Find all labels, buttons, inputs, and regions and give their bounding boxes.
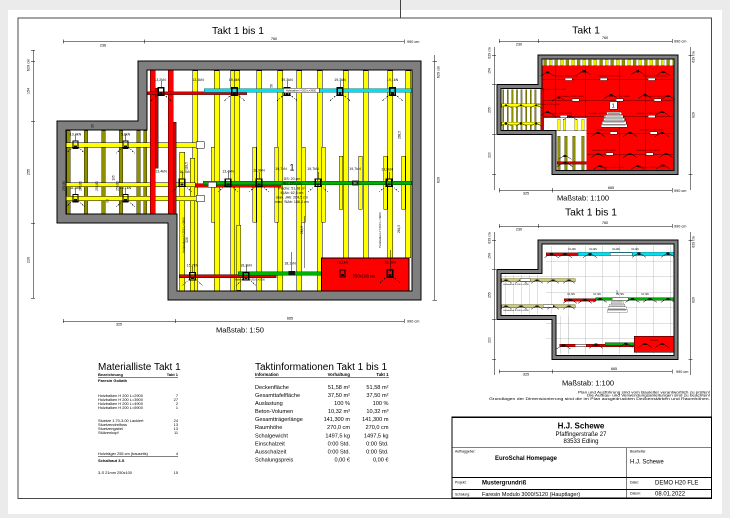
svg-text:max. JAb: 264,5 cm: max. JAb: 264,5 cm <box>276 195 308 199</box>
svg-text:Maßstab: 1:100: Maßstab: 1:100 <box>557 194 609 203</box>
svg-text:18,3kN: 18,3kN <box>240 264 252 268</box>
svg-text:1497,5 kg: 1497,5 kg <box>325 433 350 439</box>
svg-text:19,7kN: 19,7kN <box>307 167 319 171</box>
svg-text:Faresin Goliath: Faresin Goliath <box>98 378 128 383</box>
svg-text:Beton-Volumen: Beton-Volumen <box>255 409 293 415</box>
svg-text:141,300 m: 141,300 m <box>324 417 351 423</box>
svg-text:990 cm: 990 cm <box>674 40 686 44</box>
svg-text:Holzbalken H 200 L=3900: Holzbalken H 200 L=3900 <box>542 89 566 91</box>
svg-text:Pfaffingerstraße 27: Pfaffingerstraße 27 <box>556 432 608 438</box>
svg-text:255: 255 <box>488 292 492 298</box>
svg-text:Schalungspreis: Schalungspreis <box>255 458 293 464</box>
svg-text:Faresin Modulo 3000/S120 (Haup: Faresin Modulo 3000/S120 (Hauptlager) <box>482 492 580 498</box>
svg-text:19,3kN: 19,3kN <box>281 78 293 82</box>
svg-text:19,7kN: 19,7kN <box>641 293 649 296</box>
svg-text:90: 90 <box>91 124 95 128</box>
svg-text:154: 154 <box>488 68 492 74</box>
svg-text:Holzbalken H 200 L=3900: Holzbalken H 200 L=3900 <box>638 167 662 169</box>
svg-text:264,5: 264,5 <box>300 226 304 234</box>
svg-text:19,4kN: 19,4kN <box>229 78 241 82</box>
svg-text:51,58 m²: 51,58 m² <box>366 385 388 391</box>
svg-text:Auftraggeber:: Auftraggeber: <box>455 450 476 454</box>
svg-text:10,32 m³: 10,32 m³ <box>366 409 388 415</box>
svg-text:760: 760 <box>602 221 608 225</box>
svg-text:100 %: 100 % <box>373 401 389 407</box>
svg-text:08.01.2022: 08.01.2022 <box>655 492 686 498</box>
svg-text:Holzbalken H 200 L=3900: Holzbalken H 200 L=3900 <box>548 113 572 115</box>
svg-text:141,300 m: 141,300 m <box>362 417 389 423</box>
svg-text:19,2kN: 19,2kN <box>381 168 393 172</box>
svg-text:16,9kN: 16,9kN <box>253 169 265 173</box>
svg-text:19,4kN: 19,4kN <box>589 248 597 251</box>
svg-text:3-S 21mm 250x100: 3-S 21mm 250x100 <box>98 470 133 475</box>
svg-text:220: 220 <box>185 237 189 243</box>
svg-text:Ausschalzeit: Ausschalzeit <box>255 449 287 455</box>
svg-text:Grundlagen der Dimensionierung: Grundlagen der Dimensionierung sind die … <box>489 397 710 401</box>
svg-text:255: 255 <box>488 107 492 113</box>
svg-text:629 cm: 629 cm <box>488 47 492 58</box>
svg-text:18,1kN: 18,1kN <box>337 261 349 265</box>
svg-text:990 cm: 990 cm <box>674 189 686 193</box>
svg-text:154: 154 <box>27 88 31 94</box>
svg-text:19,3kN: 19,3kN <box>334 78 346 82</box>
svg-text:DEMO H20 FLE: DEMO H20 FLE <box>655 481 698 487</box>
svg-text:220: 220 <box>488 152 492 158</box>
svg-text:10,32 m³: 10,32 m³ <box>328 409 350 415</box>
svg-text:Gesamtträgerlänge: Gesamtträgerlänge <box>255 417 303 423</box>
svg-text:Fläche: 51,58 m²: Fläche: 51,58 m² <box>279 186 307 190</box>
svg-text:37,50 m²: 37,50 m² <box>328 393 350 399</box>
svg-text:665: 665 <box>611 367 617 371</box>
svg-text:H.J. Schewe: H.J. Schewe <box>558 422 605 431</box>
svg-text:629: 629 <box>692 297 696 303</box>
svg-text:Schalgewicht: Schalgewicht <box>255 433 288 439</box>
svg-text:Information: Information <box>255 372 279 377</box>
svg-text:665: 665 <box>608 186 614 190</box>
svg-text:Holzbalken H 200 L=3900: Holzbalken H 200 L=3900 <box>644 96 668 98</box>
svg-text:Holzbalken H 200 L=3900: Holzbalken H 200 L=3900 <box>636 150 660 152</box>
svg-text:255: 255 <box>27 169 31 175</box>
svg-text:Vorhaltung: Vorhaltung <box>328 372 351 377</box>
svg-text:Holzbalken H 200 L=3900: Holzbalken H 200 L=3900 <box>286 89 316 93</box>
svg-text:Takt 1 bis 1: Takt 1 bis 1 <box>212 26 264 37</box>
svg-text:Maßstab: 1:100: Maßstab: 1:100 <box>562 379 614 388</box>
svg-text:13,2kN: 13,2kN <box>154 78 166 82</box>
svg-text:Holzbalken H 200 L=3900: Holzbalken H 200 L=3900 <box>600 167 624 169</box>
svg-text:Holzbalken H 200 L=3900: Holzbalken H 200 L=3900 <box>636 113 660 115</box>
svg-text:990 cm: 990 cm <box>407 40 419 44</box>
svg-text:Deckenfläche: Deckenfläche <box>255 385 289 391</box>
svg-text:Holzbalken H 200 L=3900: Holzbalken H 200 L=3900 <box>598 76 622 78</box>
svg-text:629 cm: 629 cm <box>437 66 441 78</box>
svg-text:Holzbalken H 200 L=2900: Holzbalken H 200 L=2900 <box>235 277 265 281</box>
svg-text:Holzbalken H 200 L=3900: Holzbalken H 200 L=3900 <box>643 76 667 78</box>
svg-text:1: 1 <box>176 405 178 410</box>
svg-text:Holzträger 255 cm (bauseits): Holzträger 255 cm (bauseits) <box>98 451 149 456</box>
svg-text:760: 760 <box>271 37 277 41</box>
svg-text:Gesamttafelfläche: Gesamttafelfläche <box>255 393 300 399</box>
svg-text:230: 230 <box>516 43 522 47</box>
svg-text:220: 220 <box>488 337 492 343</box>
svg-text:19,4kN: 19,4kN <box>631 248 639 251</box>
svg-text:255,80: 255,80 <box>116 181 120 191</box>
svg-text:19,4kN: 19,4kN <box>568 248 576 251</box>
svg-text:629: 629 <box>437 177 441 183</box>
svg-text:Holzbalken H 200 L=3900: Holzbalken H 200 L=3900 <box>554 76 578 78</box>
svg-text:Holzbalken H 200 L=5900: Holzbalken H 200 L=5900 <box>98 405 144 410</box>
svg-text:0,00 €: 0,00 € <box>373 458 389 464</box>
svg-text:220: 220 <box>27 257 31 263</box>
svg-text:19,7kN: 19,7kN <box>349 167 361 171</box>
svg-text:37,50 m²: 37,50 m² <box>366 393 388 399</box>
svg-text:Holzbalken H 200 L=3900: Holzbalken H 200 L=3900 <box>536 104 560 106</box>
svg-text:Holzbalken H 200 L=3900: Holzbalken H 200 L=3900 <box>596 129 620 131</box>
svg-text:250x108: 250x108 <box>650 340 659 342</box>
svg-text:Schalung:: Schalung: <box>455 493 470 497</box>
svg-text:Datum:: Datum: <box>630 492 641 496</box>
svg-text:Holzbalken H 200 L=3900: Holzbalken H 200 L=3900 <box>182 217 186 253</box>
svg-text:Datei:: Datei: <box>630 481 639 485</box>
svg-text:Bezeichnung: Bezeichnung <box>98 372 123 377</box>
svg-text:154: 154 <box>488 253 492 259</box>
svg-text:990 cm: 990 cm <box>407 320 419 324</box>
svg-text:Takt 1: Takt 1 <box>167 372 179 377</box>
svg-text:15,7kN: 15,7kN <box>187 264 199 268</box>
svg-text:19,7kN: 19,7kN <box>275 167 287 171</box>
svg-text:255,80: 255,80 <box>95 181 99 191</box>
svg-text:Takt 1: Takt 1 <box>572 26 600 37</box>
svg-text:990 cm: 990 cm <box>674 225 686 229</box>
svg-text:19,1kN: 19,1kN <box>387 78 399 82</box>
svg-text:990 cm: 990 cm <box>676 370 688 374</box>
svg-text:118,5: 118,5 <box>185 162 189 170</box>
svg-text:100 %: 100 % <box>334 401 350 407</box>
svg-text:0:00 Std.: 0:00 Std. <box>328 449 351 455</box>
svg-text:max. StAb: 158,3 cm: max. StAb: 158,3 cm <box>275 200 308 204</box>
svg-text:Raumhöhe: Raumhöhe <box>255 425 282 431</box>
svg-text:15: 15 <box>174 470 178 475</box>
svg-text:629 cm: 629 cm <box>692 51 696 62</box>
svg-text:0,00 €: 0,00 € <box>334 458 350 464</box>
svg-text:255,80: 255,80 <box>62 181 66 191</box>
svg-text:Projekt:: Projekt: <box>455 481 467 485</box>
svg-text:0:00 Std.: 0:00 Std. <box>366 449 389 455</box>
svg-text:Auslastung: Auslastung <box>255 401 283 407</box>
svg-text:13,4kN: 13,4kN <box>155 170 167 174</box>
svg-text:13,5kN: 13,5kN <box>192 78 204 82</box>
svg-text:629: 629 <box>692 112 696 118</box>
svg-text:11: 11 <box>174 430 178 435</box>
svg-text:0:00 Std.: 0:00 Std. <box>328 441 351 447</box>
svg-text:230: 230 <box>516 228 522 232</box>
svg-text:1: 1 <box>289 163 294 173</box>
svg-text:Holzbalken H 200 L=3900: Holzbalken H 200 L=3900 <box>560 96 584 98</box>
svg-text:Mustergrundriß: Mustergrundriß <box>482 481 527 487</box>
svg-text:83533 Edling: 83533 Edling <box>563 439 598 445</box>
svg-text:1: 1 <box>612 104 615 110</box>
svg-text:90: 90 <box>106 199 110 203</box>
svg-text:629 cm: 629 cm <box>488 232 492 243</box>
svg-text:195: 195 <box>112 175 116 181</box>
svg-text:1497,5 kg: 1497,5 kg <box>364 433 389 439</box>
svg-text:325: 325 <box>116 323 122 327</box>
svg-text:325: 325 <box>523 191 529 195</box>
svg-text:268,5: 268,5 <box>398 131 402 139</box>
svg-text:13,4kN: 13,4kN <box>222 170 234 174</box>
svg-text:250x108 cm: 250x108 cm <box>353 274 376 279</box>
svg-text:Holzbalken H 200 L=3900: Holzbalken H 200 L=3900 <box>606 96 630 98</box>
svg-text:665: 665 <box>287 317 293 321</box>
svg-text:0:00 Std.: 0:00 Std. <box>366 441 389 447</box>
svg-text:Stützenkopf: Stützenkopf <box>98 430 119 435</box>
svg-text:H.J. Schewe: H.J. Schewe <box>630 460 664 466</box>
svg-text:EuroSchal Homepage: EuroSchal Homepage <box>495 456 558 462</box>
svg-text:264,5: 264,5 <box>397 225 401 233</box>
svg-text:Einschalzeit: Einschalzeit <box>255 441 285 447</box>
svg-text:325: 325 <box>523 373 529 377</box>
svg-text:270,0 cm: 270,0 cm <box>327 425 350 431</box>
svg-text:13,1kN: 13,1kN <box>120 186 132 190</box>
svg-text:lQAb: 62,5 cm: lQAb: 62,5 cm <box>281 191 304 195</box>
svg-text:Schalhaut 3-S: Schalhaut 3-S <box>98 458 125 463</box>
svg-text:Holzbalken H 200 L=3900: Holzbalken H 200 L=3900 <box>592 150 616 152</box>
svg-text:255,80: 255,80 <box>79 181 83 191</box>
svg-text:18,1kN: 18,1kN <box>284 262 296 266</box>
svg-text:51,58 m²: 51,58 m² <box>328 385 350 391</box>
svg-text:Takt 1: Takt 1 <box>376 372 389 377</box>
svg-text:19,7kN: 19,7kN <box>593 293 601 296</box>
svg-text:19,4kN: 19,4kN <box>612 248 620 251</box>
svg-text:Holzbalken H 200 L=3900: Holzbalken H 200 L=3900 <box>378 212 382 248</box>
svg-text:5,8kN: 5,8kN <box>121 133 131 137</box>
svg-text:Maßstab: 1:50: Maßstab: 1:50 <box>216 326 264 335</box>
svg-text:629 cm: 629 cm <box>27 59 31 71</box>
svg-text:19,7kN: 19,7kN <box>567 293 575 296</box>
svg-text:Takt 1 bis 1: Takt 1 bis 1 <box>565 208 617 219</box>
svg-text:58: 58 <box>270 84 274 88</box>
svg-text:Holzbalken H 200 L=2900: Holzbalken H 200 L=2900 <box>503 284 529 286</box>
svg-text:RH: 270 cm: RH: 270 cm <box>283 181 302 185</box>
svg-text:Holzbalken H 200 L=3900: Holzbalken H 200 L=3900 <box>640 129 664 131</box>
svg-text:270,0 cm: 270,0 cm <box>365 425 388 431</box>
svg-text:13,4kN: 13,4kN <box>70 133 82 137</box>
svg-text:236: 236 <box>100 44 106 48</box>
svg-text:Holzbalken H 200 L=2900: Holzbalken H 200 L=2900 <box>503 310 529 312</box>
svg-text:Bearbeiter: Bearbeiter <box>630 450 647 454</box>
svg-text:760: 760 <box>602 36 608 40</box>
svg-text:629 cm: 629 cm <box>692 236 696 247</box>
